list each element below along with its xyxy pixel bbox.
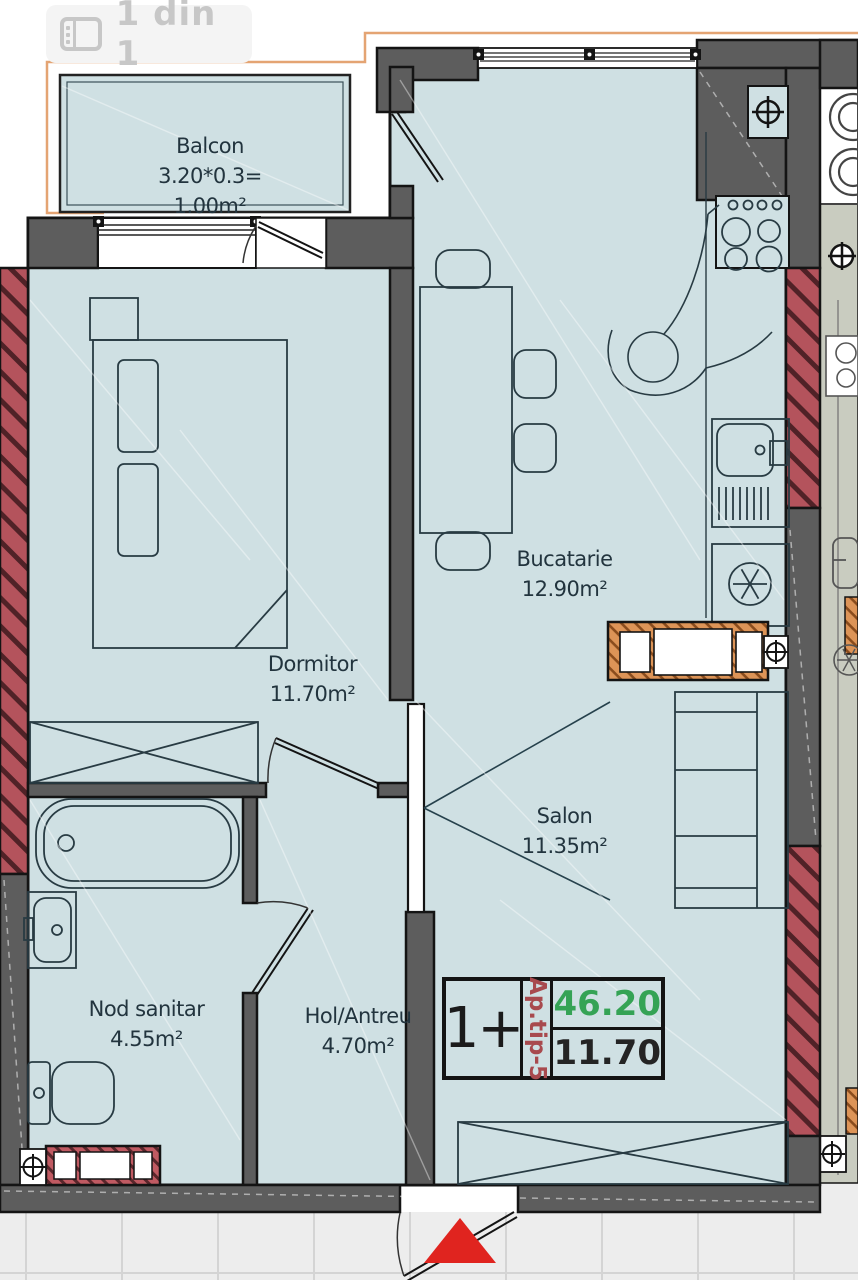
wall-central-mid [390, 186, 413, 218]
wall-left-brick [0, 268, 28, 874]
stove [716, 196, 789, 272]
apartment-type-cell: Ap.tip-5 [523, 981, 553, 1076]
floor-plan-page: 1 din 1 Balcon 3.20*0.3= 1.00m² Dormitor… [0, 0, 858, 1280]
gallery-counter[interactable]: 1 din 1 [46, 5, 252, 63]
room-area: 11.35m² [462, 831, 667, 861]
room-area: 11.70m² [210, 679, 415, 709]
wall-bedroom-top-pier-right [326, 218, 413, 268]
room-label-salon: Salon 11.35m² [462, 801, 667, 861]
wall-bedroom-top-pier-left [28, 218, 98, 268]
room-area: 4.55m² [44, 1024, 249, 1054]
wall-top-right-corner [820, 40, 858, 88]
room-label-balcon: Balcon 3.20*0.3= 1.00m² [85, 131, 335, 221]
living-area: 11.70 [553, 1030, 661, 1076]
radiator [46, 1146, 160, 1185]
wall-bottom-left [0, 1185, 400, 1212]
room-name: Dormitor [210, 649, 415, 679]
wall-right-upper [786, 68, 820, 268]
room-dimensions: 3.20*0.3= [85, 161, 335, 191]
riser-box-kitchen [764, 636, 788, 668]
areas-cell: 46.20 11.70 [553, 981, 661, 1076]
wall-right-brick-2 [786, 846, 820, 1136]
room-area: 4.70m² [262, 1031, 454, 1061]
wall-central-main [390, 268, 413, 700]
wall-central-upper [390, 67, 413, 112]
room-area: 1.00m² [85, 191, 335, 221]
wall-right-lower [786, 1136, 820, 1185]
room-count: 1+ [446, 981, 523, 1076]
room-name: Nod sanitar [44, 994, 249, 1024]
room-label-bucatarie: Bucatarie 12.90m² [462, 544, 667, 604]
room-name: Bucatarie [462, 544, 667, 574]
apartment-info-box: 1+ Ap.tip-5 46.20 11.70 [442, 977, 665, 1080]
neighbor-cabinet-2 [846, 1088, 858, 1134]
gallery-icon [60, 17, 102, 51]
utility-riser-box [20, 1149, 46, 1185]
room-label-hol-antreu: Hol/Antreu 4.70m² [262, 1001, 454, 1061]
apartment-type: Ap.tip-5 [524, 977, 550, 1081]
dining-table [420, 287, 512, 533]
gallery-counter-label: 1 din 1 [116, 0, 238, 74]
wall-bottom-right [518, 1185, 820, 1212]
room-area: 12.90m² [462, 574, 667, 604]
kitchen-bench [608, 622, 768, 680]
wall-bedroom-bottom [28, 783, 266, 797]
room-label-dormitor: Dormitor 11.70m² [210, 649, 415, 709]
room-name: Balcon [85, 131, 335, 161]
wall-right-brick-1 [786, 268, 820, 508]
wall-bath-right-upper [243, 797, 257, 903]
room-label-nod-sanitar: Nod sanitar 4.55m² [44, 994, 249, 1054]
room-name: Salon [462, 801, 667, 831]
room-name: Hol/Antreu [262, 1001, 454, 1031]
total-area: 46.20 [553, 981, 661, 1030]
window-kitchen-top [473, 48, 701, 68]
